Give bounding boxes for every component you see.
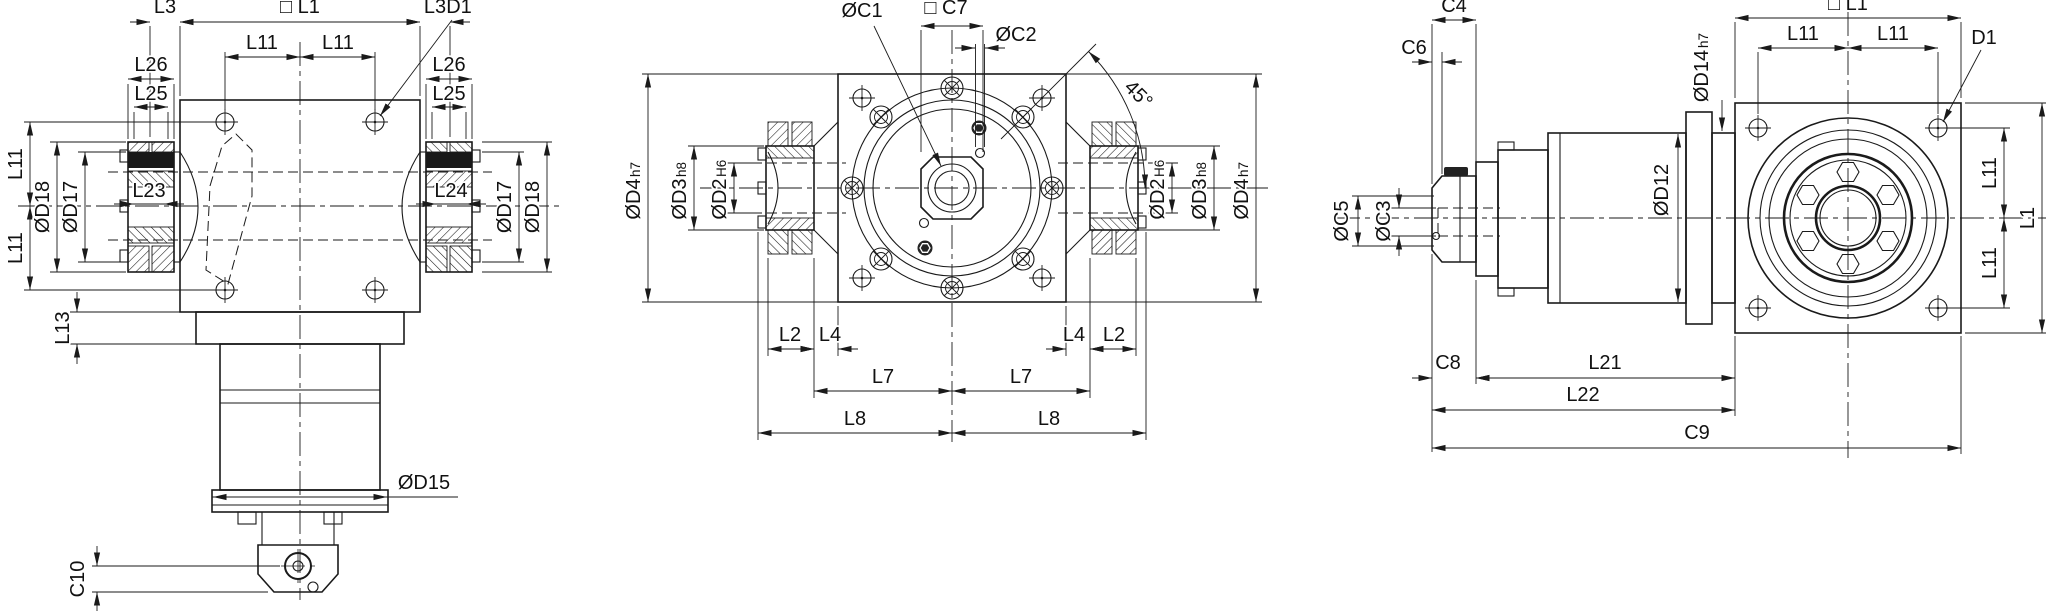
dim-label-l11-side-upper-output: L11 xyxy=(1979,157,2001,189)
svg-text:ØD2: ØD2 xyxy=(709,178,731,219)
dim-label-c8: C8 xyxy=(1435,352,1461,374)
dim-label-l2-left: L2 xyxy=(779,324,801,346)
dim-label-l1-square-output: □ L1 xyxy=(1828,0,1868,15)
dim-label-d3-right: ØD3 h8 xyxy=(1189,162,1211,220)
dim-label-l3-left: L3 xyxy=(154,0,176,18)
dim-label-l11-side-lower-output: L11 xyxy=(1979,247,2001,279)
svg-text:ØD14: ØD14 xyxy=(1691,50,1713,102)
dim-label-d2-left: ØD2 H6 xyxy=(709,160,731,220)
dim-label-l23: L23 xyxy=(132,180,165,202)
dim-label-c3: ØC3 xyxy=(1373,200,1395,241)
dim-label-l13: L13 xyxy=(52,311,74,344)
dim-label-l1-square: □ L1 xyxy=(280,0,320,18)
dim-label-l11-side-upper: L11 xyxy=(5,148,27,180)
dim-label-d12: ØD12 xyxy=(1651,164,1673,216)
svg-text:h7: h7 xyxy=(1236,162,1251,177)
dim-label-l4-left: L4 xyxy=(819,324,841,346)
svg-text:ØD3: ØD3 xyxy=(1189,178,1211,219)
front-view-dimensions xyxy=(24,20,552,611)
dim-label-c6: C6 xyxy=(1401,37,1427,59)
side-view-geometry xyxy=(700,30,1268,442)
side-view: ØC1 □ C7 ØC2 45° ØD4 h7 ØD3 h8 ØD2 H6 ØD… xyxy=(623,0,1268,442)
svg-text:h8: h8 xyxy=(1194,162,1209,177)
dim-label-l26-left: L26 xyxy=(134,54,167,76)
dim-label-45deg: 45° xyxy=(1120,76,1157,113)
dim-label-d1: D1 xyxy=(446,0,472,18)
dim-label-l11-output-left: L11 xyxy=(1787,23,1819,45)
svg-text:ØD3: ØD3 xyxy=(669,178,691,219)
dim-label-l25-left: L25 xyxy=(134,83,167,105)
svg-text:h7: h7 xyxy=(628,162,643,177)
dim-label-d15: ØD15 xyxy=(398,472,450,494)
front-view: L3 □ L1 L3 D1 L11 L11 L26 L25 L26 L25 L2… xyxy=(5,0,560,611)
dim-label-l25-right: L25 xyxy=(432,83,465,105)
dim-label-c7-square: □ C7 xyxy=(924,0,967,19)
dim-label-l8-right: L8 xyxy=(1038,408,1060,430)
dim-label-c9: C9 xyxy=(1684,422,1710,444)
dim-label-d17-right: ØD17 xyxy=(494,181,516,233)
dim-label-l1-side: L1 xyxy=(2017,207,2039,229)
dim-label-l2-right: L2 xyxy=(1103,324,1125,346)
gearbox-dimension-drawing: L3 □ L1 L3 D1 L11 L11 L26 L25 L26 L25 L2… xyxy=(0,0,2048,613)
dim-label-l4-right: L4 xyxy=(1063,324,1085,346)
dim-label-d18-left: ØD18 xyxy=(32,181,54,233)
dim-label-d4-left: ØD4 h7 xyxy=(623,162,645,220)
dim-label-c4: C4 xyxy=(1441,0,1467,17)
svg-text:ØD4: ØD4 xyxy=(1231,178,1253,219)
dim-label-l7-right: L7 xyxy=(1010,366,1032,388)
svg-text:H6: H6 xyxy=(1152,160,1167,177)
svg-text:H6: H6 xyxy=(714,160,729,177)
dim-label-l3-right: L3 xyxy=(424,0,446,18)
dim-label-l11-output-right: L11 xyxy=(1877,23,1909,45)
dim-label-l11-top-right: L11 xyxy=(322,32,354,54)
dim-label-l26-right: L26 xyxy=(432,54,465,76)
dim-label-d2-right: ØD2 H6 xyxy=(1147,160,1169,220)
dim-label-d14: ØD14 h7 xyxy=(1691,33,1713,102)
svg-text:h8: h8 xyxy=(674,162,689,177)
dim-label-l21: L21 xyxy=(1588,352,1621,374)
dim-label-l8-left: L8 xyxy=(844,408,866,430)
dim-label-c5: ØC5 xyxy=(1331,200,1353,241)
svg-text:ØD2: ØD2 xyxy=(1147,178,1169,219)
dim-label-l11-side-lower: L11 xyxy=(5,232,27,264)
dim-label-l11-top-left: L11 xyxy=(246,32,278,54)
svg-text:ØD4: ØD4 xyxy=(623,178,645,219)
dim-label-d1-output: D1 xyxy=(1971,27,1997,49)
dim-label-c1: ØC1 xyxy=(841,0,882,22)
dim-label-l24: L24 xyxy=(434,180,467,202)
dim-label-c10: C10 xyxy=(67,561,89,598)
dim-label-d18-right: ØD18 xyxy=(522,181,544,233)
dim-label-l7-left: L7 xyxy=(872,366,894,388)
output-view: C4 C6 □ L1 L11 L11 D1 ØD14 h7 ØC5 ØC3 ØD… xyxy=(1331,0,2046,458)
technical-drawing-page: L3 □ L1 L3 D1 L11 L11 L26 L25 L26 L25 L2… xyxy=(0,0,2048,613)
dim-label-d17-left: ØD17 xyxy=(60,181,82,233)
dim-label-c2: ØC2 xyxy=(995,24,1036,46)
dim-label-d4-right: ØD4 h7 xyxy=(1231,162,1253,220)
svg-text:h7: h7 xyxy=(1696,33,1711,48)
dim-label-l22: L22 xyxy=(1566,384,1599,406)
dim-label-d3-left: ØD3 h8 xyxy=(669,162,691,220)
front-view-geometry xyxy=(18,42,560,600)
